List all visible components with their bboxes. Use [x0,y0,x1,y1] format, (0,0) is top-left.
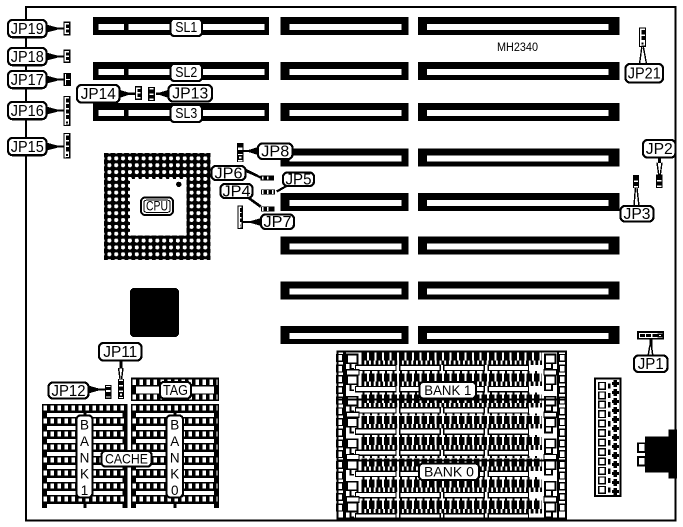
svg-text:A: A [170,434,179,449]
svg-text:JP18: JP18 [11,49,44,66]
svg-text:JP15: JP15 [11,139,44,156]
svg-text:K: K [80,467,89,482]
svg-text:B: B [80,418,89,433]
svg-text:JP1: JP1 [638,356,664,373]
svg-text:CACHE: CACHE [105,450,148,466]
svg-text:B: B [170,418,179,433]
svg-text:JP14: JP14 [81,86,116,103]
svg-text:SL2: SL2 [175,64,197,81]
svg-text:JP11: JP11 [103,344,137,361]
svg-text:N: N [170,450,180,465]
svg-text:JP4: JP4 [223,183,251,200]
svg-text:CPU: CPU [146,199,168,214]
svg-text:SL1: SL1 [175,19,197,36]
svg-text:JP8: JP8 [261,144,289,161]
svg-text:JP6: JP6 [215,165,243,182]
svg-text:TAG: TAG [163,382,188,399]
svg-text:JP7: JP7 [264,214,292,231]
svg-text:BANK 0: BANK 0 [424,464,474,480]
svg-text:A: A [80,434,89,449]
svg-text:K: K [170,467,179,482]
svg-text:JP12: JP12 [52,383,86,400]
svg-text:MH2340: MH2340 [497,42,538,54]
svg-text:0: 0 [171,483,179,498]
svg-text:JP19: JP19 [11,21,44,38]
svg-text:JP2: JP2 [646,141,673,158]
svg-text:SL3: SL3 [175,105,197,122]
svg-text:BANK 1: BANK 1 [424,382,471,398]
svg-text:JP16: JP16 [11,103,44,120]
svg-text:1: 1 [81,483,89,498]
svg-text:JP3: JP3 [624,206,651,223]
svg-text:JP17: JP17 [11,72,44,89]
svg-text:JP13: JP13 [172,86,208,103]
svg-text:JP21: JP21 [628,66,661,83]
svg-text:N: N [80,450,90,465]
svg-text:JP5: JP5 [286,172,312,189]
